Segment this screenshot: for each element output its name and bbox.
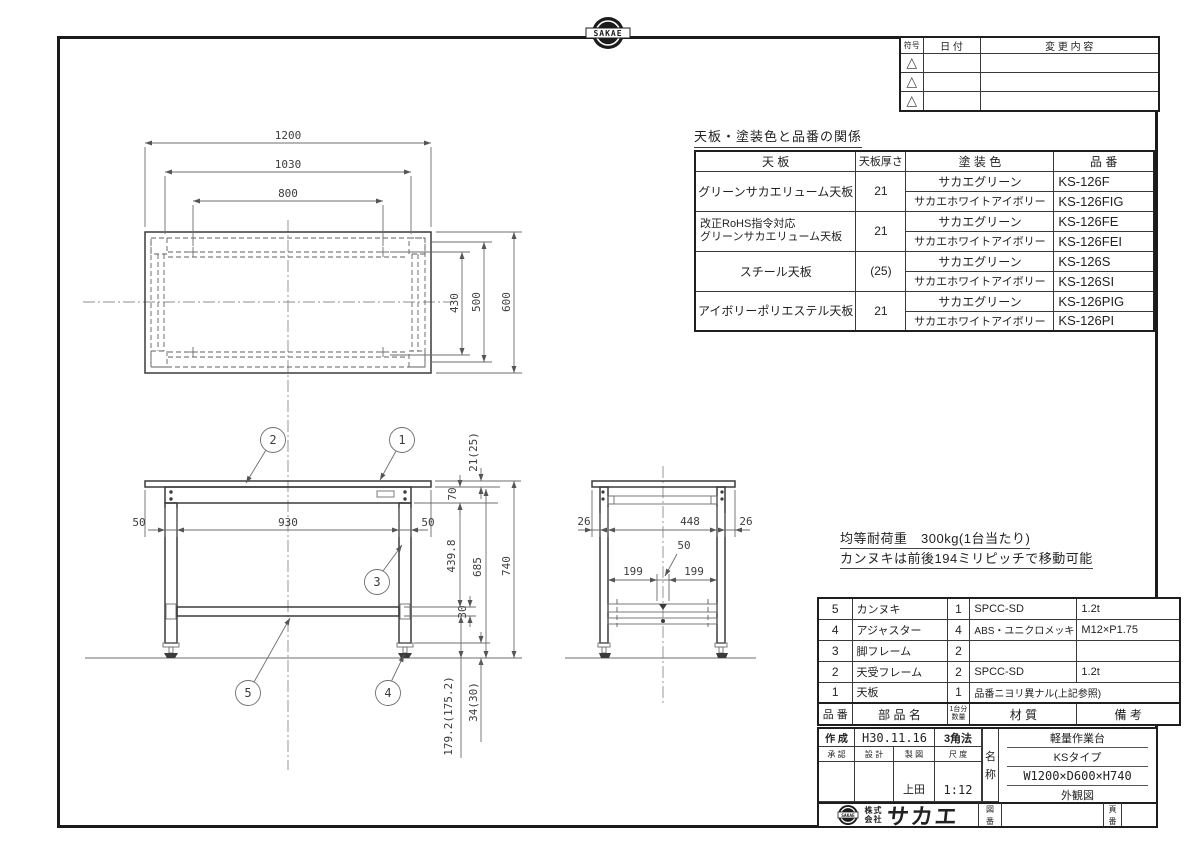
finish-top-name: スチール天板 bbox=[695, 251, 856, 291]
svg-text:3: 3 bbox=[373, 575, 380, 589]
dim-685: 685 bbox=[471, 557, 484, 577]
revision-change-header: 変 更 内 容 bbox=[980, 37, 1159, 54]
drawing-no-value bbox=[1002, 802, 1104, 826]
finish-part-no: KS-126FEI bbox=[1054, 231, 1154, 251]
svg-text:SAKAE: SAKAE bbox=[842, 813, 856, 819]
dim-199-right: 199 bbox=[684, 565, 704, 578]
created-label: 作 成 bbox=[819, 729, 855, 747]
part-qty: 1 bbox=[947, 682, 970, 703]
adjuster-left bbox=[163, 643, 179, 658]
design-label: 設 計 bbox=[855, 747, 894, 762]
adjuster-right bbox=[715, 643, 728, 658]
parts-header-remarks: 備 考 bbox=[1077, 703, 1180, 725]
nameplate bbox=[377, 491, 394, 497]
revision-triangle-icon: △ bbox=[906, 93, 917, 109]
design-value bbox=[855, 762, 894, 802]
top-logo-text: SAKAE bbox=[593, 29, 622, 38]
finish-header-thickness: 天板厚さ bbox=[856, 151, 906, 171]
drafter-name: 上田 bbox=[894, 762, 935, 802]
page-no-value bbox=[1122, 802, 1156, 826]
svg-text:2: 2 bbox=[269, 433, 276, 447]
part-name: 脚フレーム bbox=[852, 640, 947, 661]
dim-50-left: 50 bbox=[132, 516, 145, 529]
revision-date-cell bbox=[923, 73, 980, 92]
finish-top-name: アイボリーポリエステル天板 bbox=[695, 291, 856, 331]
parts-header-name: 部 品 名 bbox=[852, 703, 947, 725]
parts-header-no: 品 番 bbox=[818, 703, 852, 725]
part-name: アジャスター bbox=[852, 619, 947, 640]
product-size: W1200×D600×H740 bbox=[1007, 767, 1148, 786]
finish-color: サカエホワイトアイボリー bbox=[906, 311, 1054, 331]
part-no: 2 bbox=[818, 661, 852, 682]
adjuster-right bbox=[397, 643, 413, 658]
draft-label: 製 図 bbox=[894, 747, 935, 762]
finish-part-no: KS-126FIG bbox=[1054, 191, 1154, 211]
part-no: 5 bbox=[818, 598, 852, 619]
finish-top-name-line2: グリーンサカエリューム天板 bbox=[700, 231, 842, 243]
adjuster-left bbox=[598, 643, 611, 658]
part-no: 4 bbox=[818, 619, 852, 640]
part-name: カンヌキ bbox=[852, 598, 947, 619]
dim-21-25: 21(25) bbox=[467, 432, 480, 472]
dim-34-30: 34(30) bbox=[467, 682, 480, 722]
finish-part-no: KS-126PI bbox=[1054, 311, 1154, 331]
finish-part-no: KS-126SI bbox=[1054, 271, 1154, 291]
finish-color: サカエグリーン bbox=[906, 171, 1054, 191]
engineering-drawing-page: 1200 1030 800 430 500 600 bbox=[0, 0, 1200, 849]
dim-179-2: 179.2(175.2) bbox=[442, 676, 455, 755]
finish-color: サカエグリーン bbox=[906, 211, 1054, 231]
finish-thickness: 21 bbox=[856, 171, 906, 211]
company-prefix-bottom: 会社 bbox=[864, 815, 882, 824]
finish-top-name-line1: 改正RoHS指令対応 bbox=[700, 218, 795, 230]
finish-table-title: 天板・塗装色と品番の関係 bbox=[694, 126, 862, 148]
name-label: 名 称 bbox=[985, 748, 996, 782]
dim-430: 430 bbox=[448, 293, 461, 313]
part-remarks: M12×P1.75 bbox=[1077, 619, 1180, 640]
finish-color: サカエホワイトアイボリー bbox=[906, 271, 1054, 291]
part-name: 天板 bbox=[852, 682, 947, 703]
front-view: 50 930 50 21(25) 70 439.8 685 740 30 179… bbox=[85, 428, 522, 759]
part-qty: 2 bbox=[947, 640, 970, 661]
dim-26-left: 26 bbox=[577, 515, 590, 528]
dim-1200: 1200 bbox=[275, 129, 302, 142]
svg-text:5: 5 bbox=[244, 686, 251, 700]
finish-thickness: 21 bbox=[856, 291, 906, 331]
finish-color: サカエグリーン bbox=[906, 291, 1054, 311]
dim-439-8: 439.8 bbox=[445, 539, 458, 572]
part-material: SPCC-SD bbox=[970, 598, 1077, 619]
scale-label: 尺 度 bbox=[935, 747, 982, 762]
revision-date-cell bbox=[923, 92, 980, 112]
svg-text:4: 4 bbox=[384, 686, 391, 700]
sakae-company-logo: SAKAE 株式 会社 サカエ bbox=[837, 802, 959, 826]
drawing-scale: 1:12 bbox=[935, 762, 982, 802]
product-name: 軽量作業台 bbox=[1007, 729, 1148, 748]
part-remarks bbox=[1077, 640, 1180, 661]
page-no-label: 頁 番 bbox=[1109, 804, 1117, 827]
revision-triangle-icon: △ bbox=[906, 55, 917, 71]
drawing-no-label: 図 番 bbox=[986, 804, 994, 827]
parts-header-qty-bottom: 数量 bbox=[950, 714, 968, 722]
side-view: 26 448 26 199 199 50 bbox=[565, 466, 756, 703]
part-remarks: 1.2t bbox=[1077, 598, 1180, 619]
finish-color: サカエホワイトアイボリー bbox=[906, 191, 1054, 211]
dim-199-left: 199 bbox=[623, 565, 643, 578]
finish-top-name: グリーンサカエリューム天板 bbox=[695, 171, 856, 211]
parts-header-material: 材 質 bbox=[970, 703, 1077, 725]
part-remarks: 1.2t bbox=[1077, 661, 1180, 682]
finish-header-part: 品 番 bbox=[1054, 151, 1154, 171]
company-prefix-top: 株式 bbox=[864, 806, 882, 815]
finish-header-color: 塗 装 色 bbox=[906, 151, 1054, 171]
dim-740: 740 bbox=[500, 556, 513, 576]
revision-change-cell bbox=[980, 92, 1159, 112]
revision-symbol-header: 符号 bbox=[900, 37, 923, 54]
part-no: 1 bbox=[818, 682, 852, 703]
finish-table: 天 板 天板厚さ 塗 装 色 品 番 グリーンサカエリューム天板 21 サカエグ… bbox=[694, 150, 1155, 332]
part-material: SPCC-SD bbox=[970, 661, 1077, 682]
approved-label: 承 認 bbox=[819, 747, 855, 762]
dim-448: 448 bbox=[680, 515, 700, 528]
plan-view: 1200 1030 800 430 500 600 bbox=[83, 129, 522, 770]
part-qty: 2 bbox=[947, 661, 970, 682]
crossbar-pitch-note: カンヌキは前後194ミリピッチで移動可能 bbox=[840, 548, 1093, 569]
part-qty: 1 bbox=[947, 598, 970, 619]
dim-930: 930 bbox=[278, 516, 298, 529]
dim-30: 30 bbox=[456, 605, 469, 618]
part-material bbox=[970, 640, 1077, 661]
part-qty: 4 bbox=[947, 619, 970, 640]
finish-thickness: (25) bbox=[856, 251, 906, 291]
revision-date-cell bbox=[923, 54, 980, 73]
finish-part-no: KS-126S bbox=[1054, 251, 1154, 271]
dim-600: 600 bbox=[500, 292, 513, 312]
revision-change-cell bbox=[980, 54, 1159, 73]
product-type: KSタイプ bbox=[1007, 748, 1148, 767]
dim-70: 70 bbox=[446, 487, 459, 500]
finish-part-no: KS-126FE bbox=[1054, 211, 1154, 231]
projection-method: 3角法 bbox=[935, 729, 982, 747]
approved-value bbox=[819, 762, 855, 802]
finish-header-top: 天 板 bbox=[695, 151, 856, 171]
revision-table: 符号 日 付 変 更 内 容 △ △ △ bbox=[899, 36, 1160, 112]
finish-thickness: 21 bbox=[856, 211, 906, 251]
part-material: 品番ニヨリ異ナル(上記参照) bbox=[970, 682, 1180, 703]
svg-text:1: 1 bbox=[398, 433, 405, 447]
part-name: 天受フレーム bbox=[852, 661, 947, 682]
finish-part-no: KS-126F bbox=[1054, 171, 1154, 191]
finish-color: サカエホワイトアイボリー bbox=[906, 231, 1054, 251]
dim-26-right: 26 bbox=[739, 515, 752, 528]
dim-800: 800 bbox=[278, 187, 298, 200]
finish-part-no: KS-126PIG bbox=[1054, 291, 1154, 311]
revision-change-cell bbox=[980, 73, 1159, 92]
company-name: サカエ bbox=[886, 802, 961, 826]
dim-50-pitch: 50 bbox=[677, 539, 690, 552]
sakae-logo-icon: SAKAE bbox=[837, 804, 859, 826]
sakae-top-logo: SAKAE bbox=[586, 17, 630, 49]
dim-500: 500 bbox=[470, 292, 483, 312]
title-block: 作 成 H30.11.16 3角法 承 認 設 計 製 図 尺 度 上田 1:1… bbox=[817, 727, 1158, 828]
revision-triangle-icon: △ bbox=[906, 74, 917, 90]
balloon-callouts: 2 1 3 5 4 bbox=[236, 428, 415, 706]
dim-50-right: 50 bbox=[421, 516, 434, 529]
revision-date-header: 日 付 bbox=[923, 37, 980, 54]
part-material: ABS・ユニクロメッキ bbox=[970, 619, 1077, 640]
load-capacity-note: 均等耐荷重 300kg(1台当たり) bbox=[840, 528, 1030, 549]
dim-1030: 1030 bbox=[275, 158, 302, 171]
created-date: H30.11.16 bbox=[855, 729, 935, 747]
part-no: 3 bbox=[818, 640, 852, 661]
parts-header-qty-top: 1台分 bbox=[950, 706, 968, 714]
finish-color: サカエグリーン bbox=[906, 251, 1054, 271]
parts-table: 5 カンヌキ 1 SPCC-SD 1.2t 4 アジャスター 4 ABS・ユニク… bbox=[817, 597, 1181, 726]
